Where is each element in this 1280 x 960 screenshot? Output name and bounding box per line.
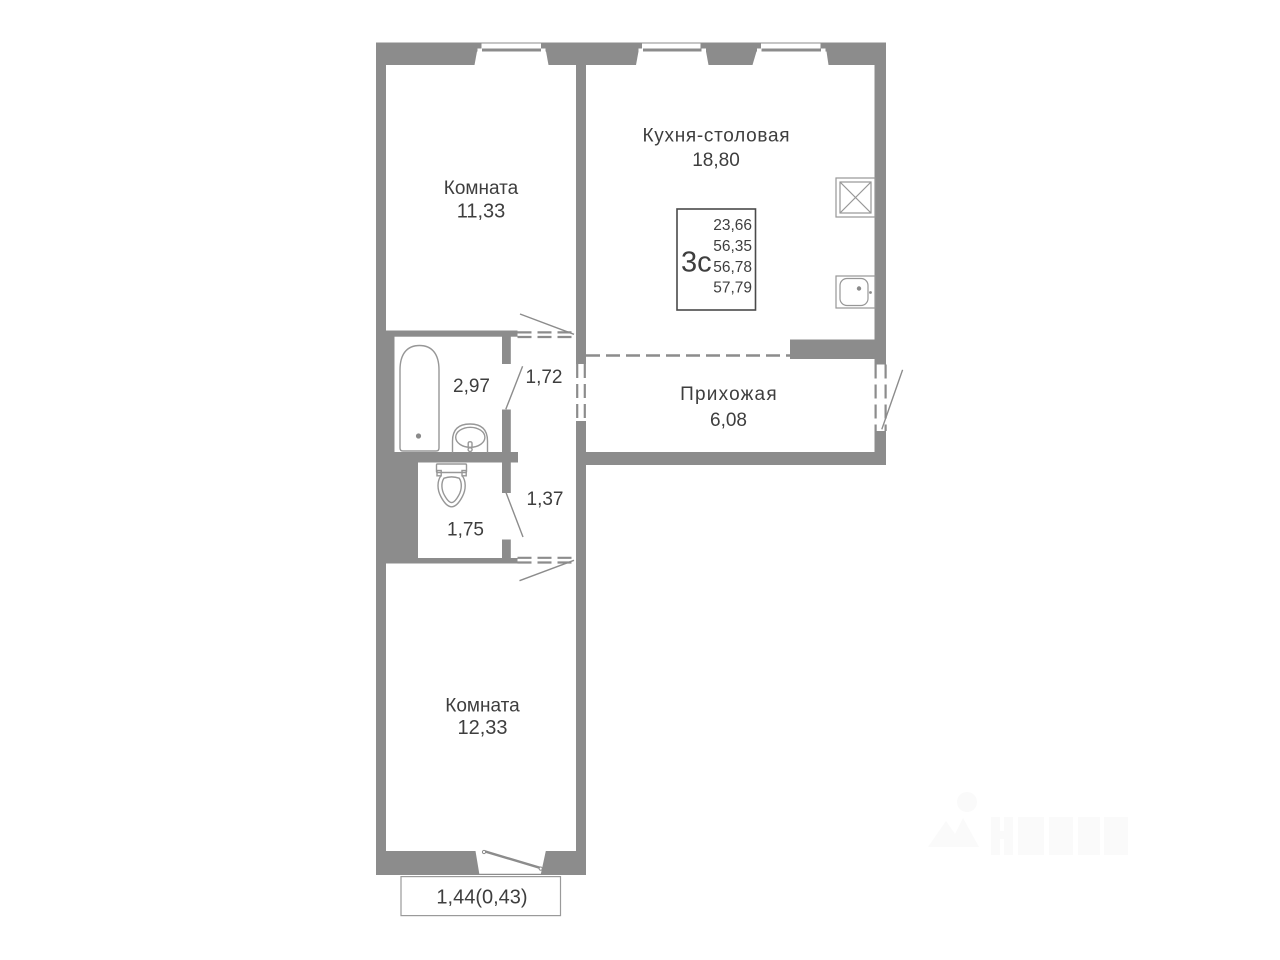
svg-text:Комната: Комната [444, 178, 519, 199]
svg-text:23,66: 23,66 [713, 217, 752, 234]
svg-text:56,78: 56,78 [713, 259, 752, 276]
svg-text:2,97: 2,97 [453, 376, 490, 397]
svg-text:12,33: 12,33 [457, 717, 507, 739]
svg-text:1,44(0,43): 1,44(0,43) [436, 887, 527, 909]
svg-text:Комната: Комната [445, 696, 520, 717]
svg-text:1,75: 1,75 [447, 520, 484, 541]
svg-text:1,72: 1,72 [526, 367, 563, 388]
svg-text:1,37: 1,37 [527, 489, 564, 510]
svg-text:18,80: 18,80 [692, 150, 740, 171]
svg-text:56,35: 56,35 [713, 238, 752, 255]
svg-text:Прихожая: Прихожая [680, 384, 778, 405]
svg-text:3с: 3с [681, 247, 712, 279]
svg-text:11,33: 11,33 [457, 201, 506, 223]
svg-text:Кухня-столовая: Кухня-столовая [643, 126, 791, 147]
svg-text:6,08: 6,08 [710, 410, 747, 431]
svg-text:57,79: 57,79 [713, 280, 752, 297]
